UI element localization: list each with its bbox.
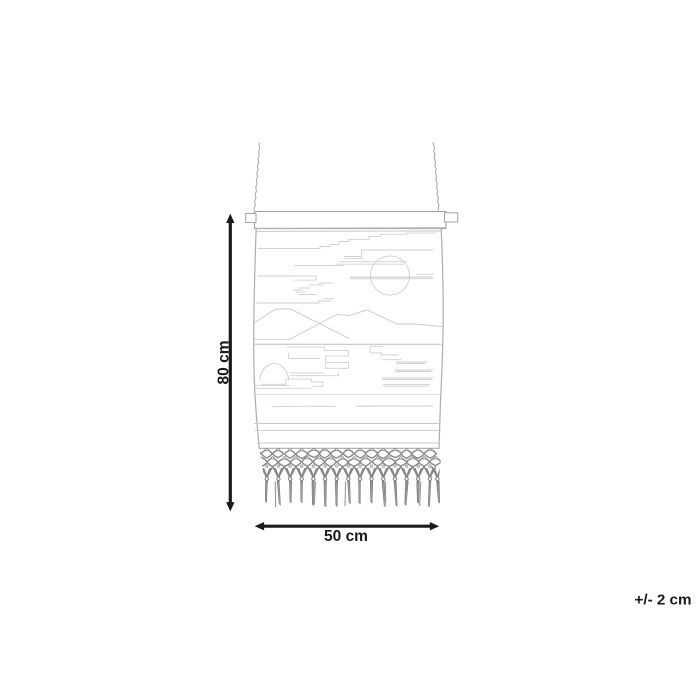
svg-text:50 cm: 50 cm: [324, 528, 368, 545]
svg-text:80 cm: 80 cm: [215, 341, 232, 385]
svg-text:+/- 2 cm: +/- 2 cm: [635, 592, 692, 609]
